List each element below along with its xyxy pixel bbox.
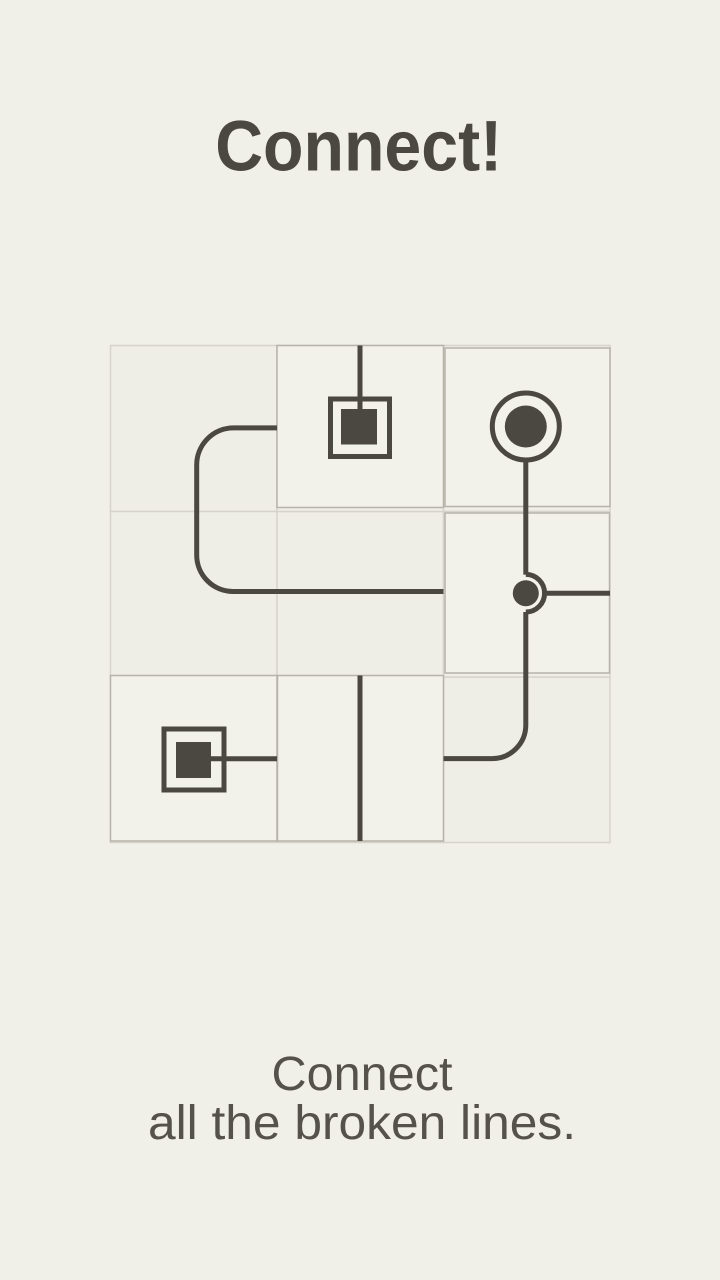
svg-text:Connect: Connect bbox=[272, 1047, 454, 1101]
svg-text:all the broken lines.: all the broken lines. bbox=[148, 1096, 576, 1150]
svg-text:Connect!: Connect! bbox=[215, 107, 502, 187]
